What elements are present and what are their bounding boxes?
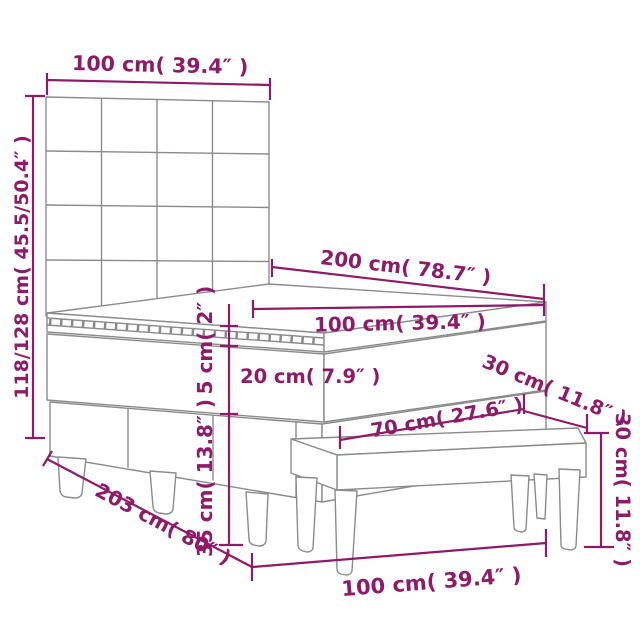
dim-bench-height: 30 cm( 11.8″ ): [584, 413, 634, 567]
headboard-grid: [46, 98, 269, 316]
bench-leg-mid-right: [534, 474, 547, 519]
product-dimension-image: 100 cm( 39.4″ ) 118/128 cm( 45.5/50.4″ )…: [0, 0, 640, 640]
dim-bench-length-label: 100 cm( 39.4″ ): [341, 563, 523, 601]
dim-bench-length: 100 cm( 39.4″ ): [252, 529, 546, 601]
dim-headboard-width-label: 100 cm( 39.4″ ): [72, 51, 249, 79]
dim-topper-height-label: 5 cm( 2″ ): [193, 286, 217, 395]
bench-illustration: [291, 428, 586, 575]
dim-bench-height-label: 30 cm( 11.8″ ): [611, 413, 634, 567]
dim-total-height: 118/128 cm( 45.5/50.4″ ): [11, 96, 45, 438]
dim-mattress-width-label: 100 cm( 39.4″ ): [314, 309, 486, 337]
dim-headboard-width: 100 cm( 39.4″ ): [47, 51, 270, 100]
dim-bench-height-line: [584, 433, 614, 547]
bed-leg-3: [246, 492, 268, 546]
bench-leg-front-right: [559, 469, 580, 550]
bench-leg-back-left: [296, 477, 317, 552]
dimension-diagram-canvas: 100 cm( 39.4″ ) 118/128 cm( 45.5/50.4″ )…: [0, 0, 640, 640]
dim-mattress-height-label: 20 cm( 7.9″ ): [240, 365, 380, 388]
bench-leg-back-right: [511, 475, 529, 532]
dim-total-height-label: 118/128 cm( 45.5/50.4″ ): [11, 135, 33, 399]
bench-leg-front-left: [335, 490, 357, 575]
